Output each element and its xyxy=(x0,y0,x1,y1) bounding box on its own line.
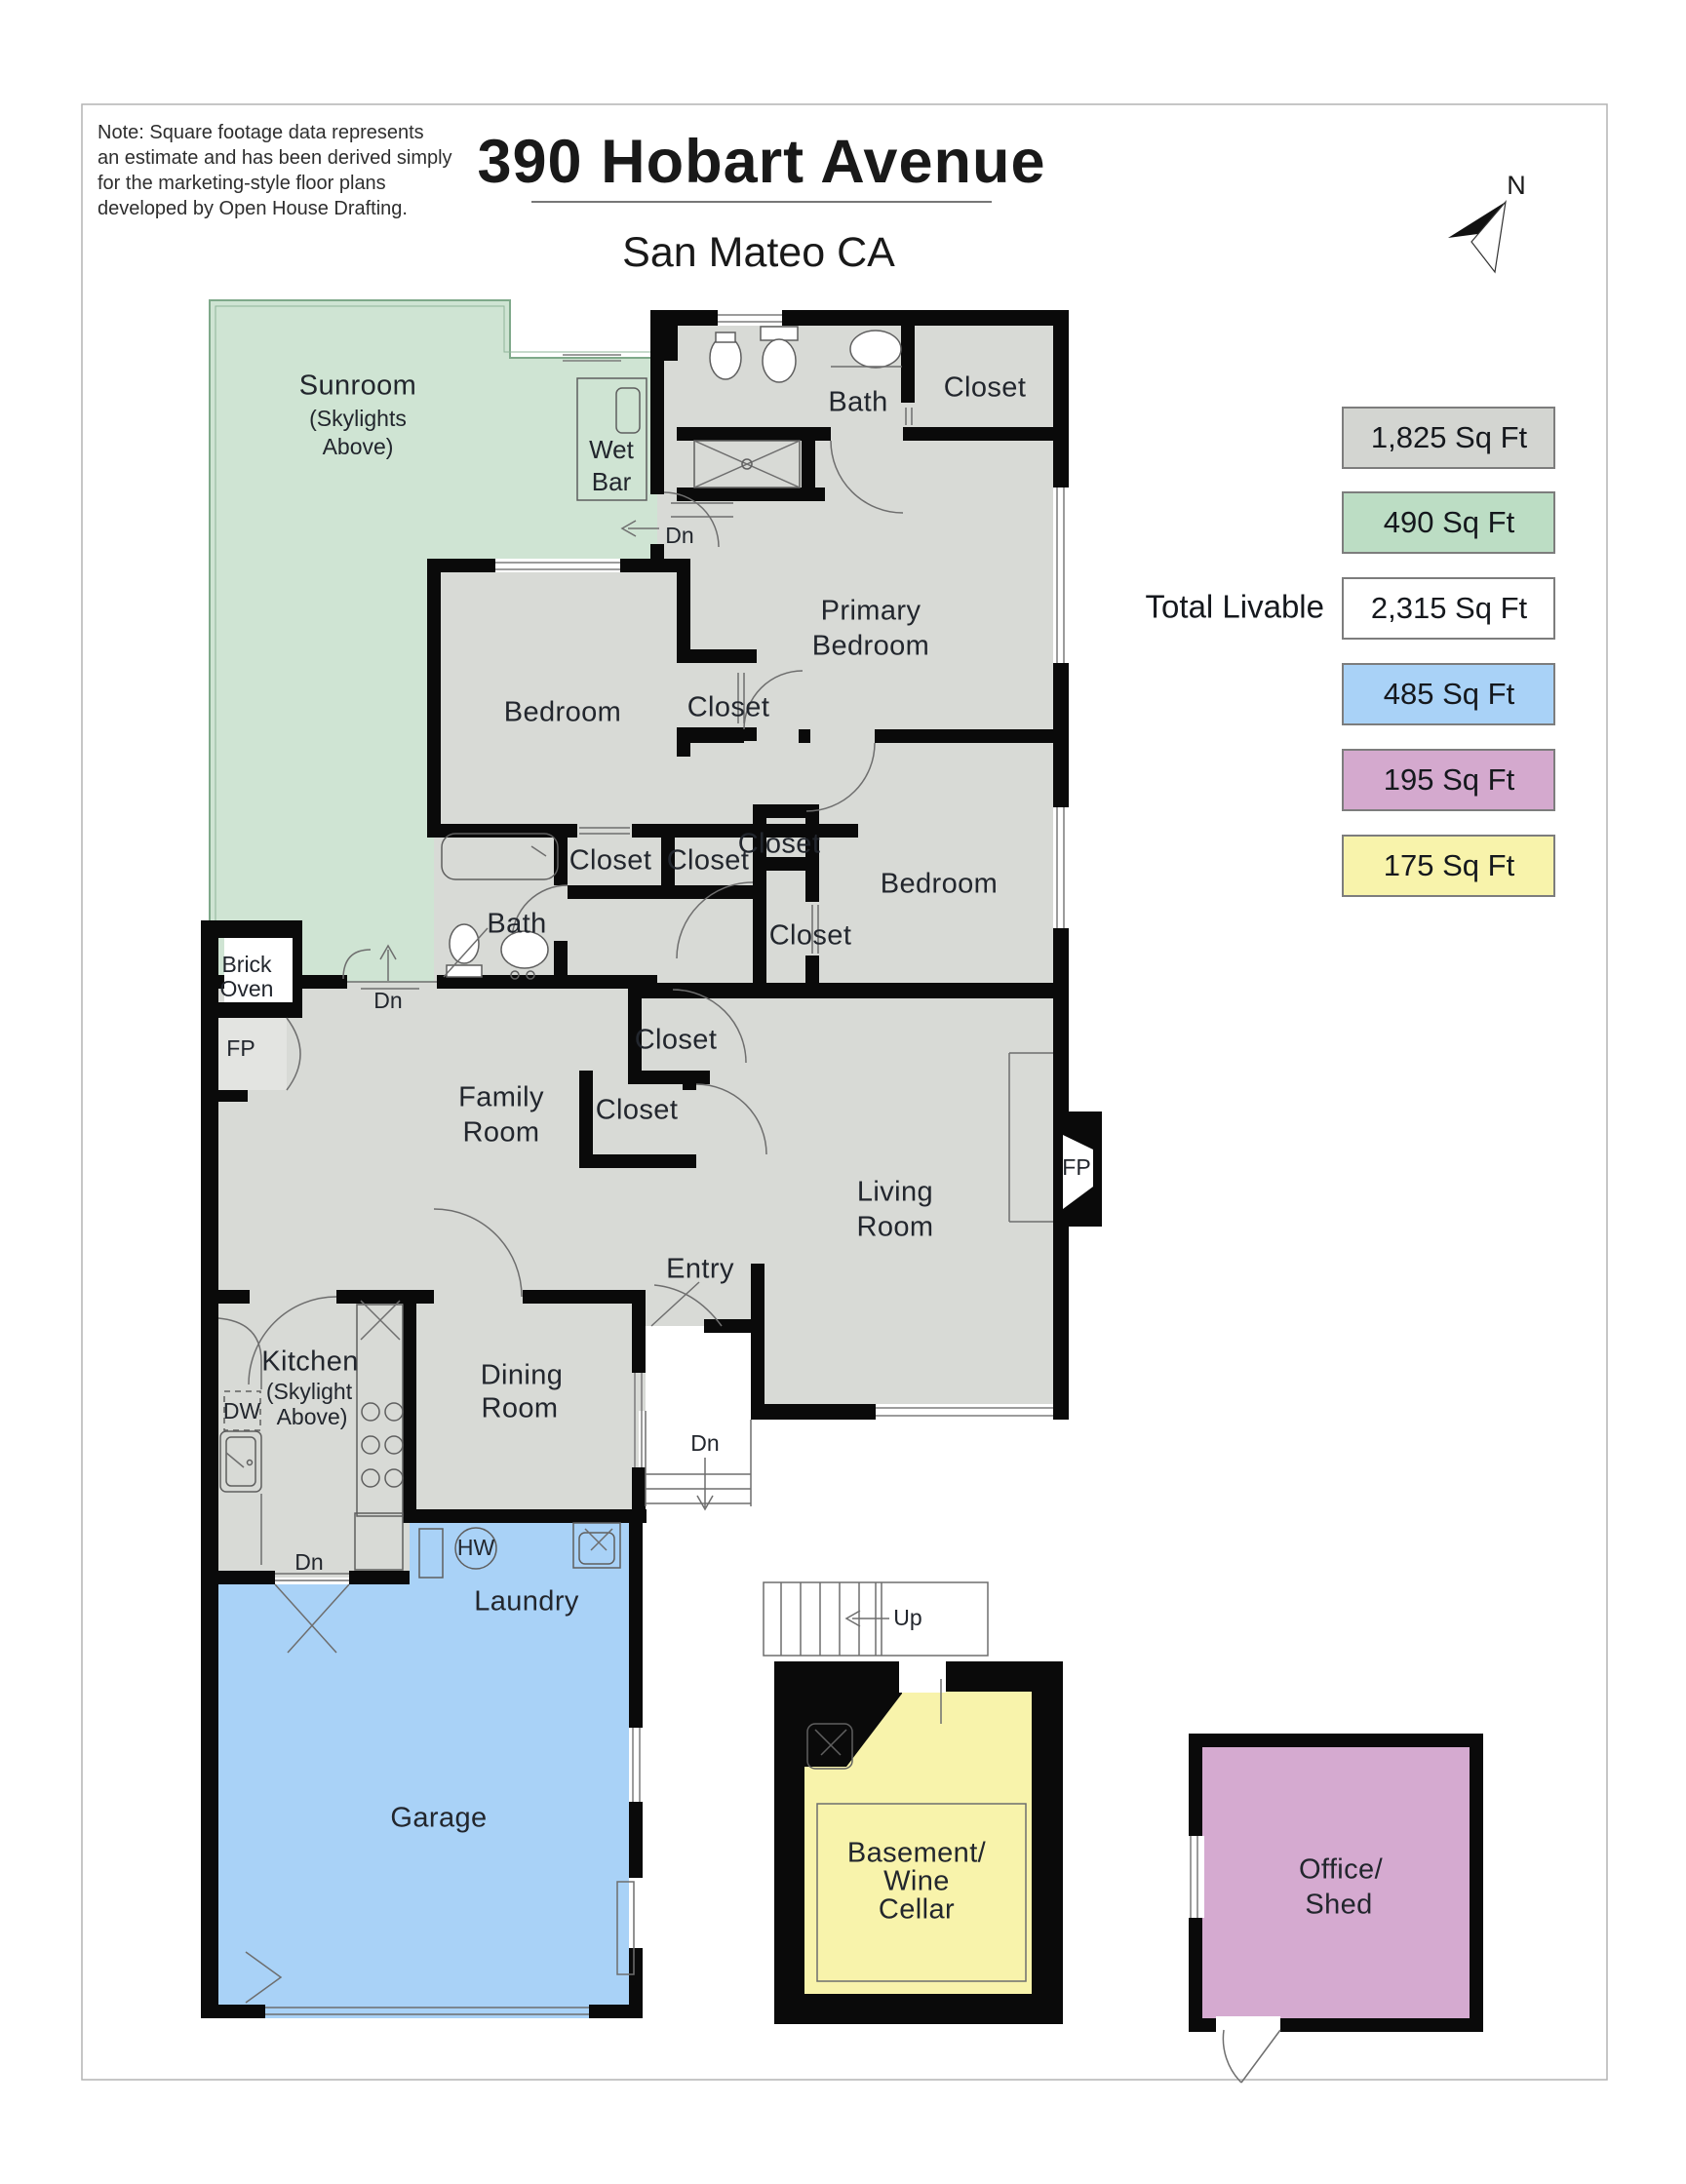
brick-oven-label: Brick xyxy=(221,952,272,977)
closet-label: Closet xyxy=(944,372,1027,404)
bedroom-label: Bedroom xyxy=(504,697,621,728)
header: Note: Square footage data represents an … xyxy=(98,122,1526,276)
office-shed-label: Office/ xyxy=(1299,1854,1384,1886)
note-line: for the marketing-style floor plans xyxy=(98,173,386,194)
water-heater-label: HW xyxy=(457,1535,495,1560)
toilet-tank-icon xyxy=(761,327,798,340)
living-room-label: Room xyxy=(857,1212,934,1243)
wet-bar-label: Bar xyxy=(592,467,632,496)
legend-value: 2,315 Sq Ft xyxy=(1371,591,1528,625)
note-line: Note: Square footage data represents xyxy=(98,122,424,143)
sunroom-label: Sunroom xyxy=(299,370,416,402)
sunroom-sublabel: (Skylights xyxy=(309,406,407,431)
kitchen-label: Kitchen xyxy=(261,1346,359,1378)
legend-value: 175 Sq Ft xyxy=(1384,848,1515,882)
kitchen-sublabel: (Skylight xyxy=(266,1379,353,1404)
office-window-gap xyxy=(1183,1836,1204,1918)
office-shed-label: Shed xyxy=(1305,1890,1372,1921)
sink-icon xyxy=(850,331,901,368)
dn-label: Dn xyxy=(665,523,693,548)
closet-label: Closet xyxy=(635,1025,718,1056)
note-block: Note: Square footage data represents an … xyxy=(98,122,452,219)
entry-porch-area xyxy=(646,1326,751,1411)
toilet-icon xyxy=(763,339,796,382)
north-arrow-icon: N xyxy=(1448,171,1526,272)
page-subtitle: San Mateo CA xyxy=(622,229,895,276)
floor-plan-svg: Note: Square footage data represents an … xyxy=(0,0,1686,2184)
fireplace-label: FP xyxy=(1062,1154,1090,1180)
living-room-label: Living xyxy=(857,1177,933,1208)
primary-bedroom-label: Primary xyxy=(821,596,921,627)
family-room-label: Room xyxy=(463,1117,540,1149)
kitchen-sublabel: Above) xyxy=(277,1404,348,1429)
brick-oven-label: Oven xyxy=(220,976,274,1001)
office-door-leaf xyxy=(1241,2030,1280,2083)
legend-total-label: Total Livable xyxy=(1146,589,1324,625)
legend: Total Livable 1,825 Sq Ft 490 Sq Ft 2,31… xyxy=(1146,408,1554,896)
primary-bedroom-label: Bedroom xyxy=(812,631,929,662)
note-line: an estimate and has been derived simply xyxy=(98,147,452,169)
garage-label: Garage xyxy=(390,1803,487,1834)
closet-label: Closet xyxy=(569,845,652,877)
bath-label: Bath xyxy=(828,387,887,418)
note-line: developed by Open House Drafting. xyxy=(98,198,408,219)
laundry-label: Laundry xyxy=(474,1586,579,1618)
closet-label: Closet xyxy=(738,829,821,860)
basement-label: Wine xyxy=(883,1866,950,1897)
dn-label: Dn xyxy=(690,1430,719,1456)
basement-label: Basement/ xyxy=(847,1838,987,1869)
office-door-arc xyxy=(1223,2030,1241,2083)
up-label: Up xyxy=(893,1605,921,1630)
closet-label: Closet xyxy=(596,1095,679,1126)
legend-value: 485 Sq Ft xyxy=(1384,677,1515,711)
family-room-label: Family xyxy=(458,1082,544,1113)
closet-label: Closet xyxy=(687,692,770,723)
dining-room-label: Dining xyxy=(481,1360,564,1391)
bedroom-label: Bedroom xyxy=(881,869,998,900)
basement-label: Cellar xyxy=(879,1894,955,1926)
legend-value: 1,825 Sq Ft xyxy=(1371,420,1528,454)
legend-value: 195 Sq Ft xyxy=(1384,762,1515,797)
bedroom-wing-area xyxy=(434,559,678,988)
page-title: 390 Hobart Avenue xyxy=(477,128,1045,196)
wet-bar-label: Wet xyxy=(589,435,635,464)
closet-label: Closet xyxy=(667,845,750,877)
office-door-gap xyxy=(1216,2016,1280,2032)
dn-label: Dn xyxy=(294,1549,323,1575)
legend-value: 490 Sq Ft xyxy=(1384,505,1515,539)
entry-label: Entry xyxy=(666,1254,734,1285)
dining-room-label: Room xyxy=(482,1393,559,1424)
fireplace-label: FP xyxy=(226,1035,255,1061)
compass-n-label: N xyxy=(1507,171,1526,200)
basement-door-gap xyxy=(899,1657,946,1693)
sunroom-sublabel: Above) xyxy=(323,434,394,459)
bath-label: Bath xyxy=(487,909,546,940)
closet-label: Closet xyxy=(769,920,852,952)
north-arrow-outline xyxy=(1471,202,1506,272)
dn-label: Dn xyxy=(373,988,402,1013)
dishwasher-label: DW xyxy=(223,1398,261,1423)
